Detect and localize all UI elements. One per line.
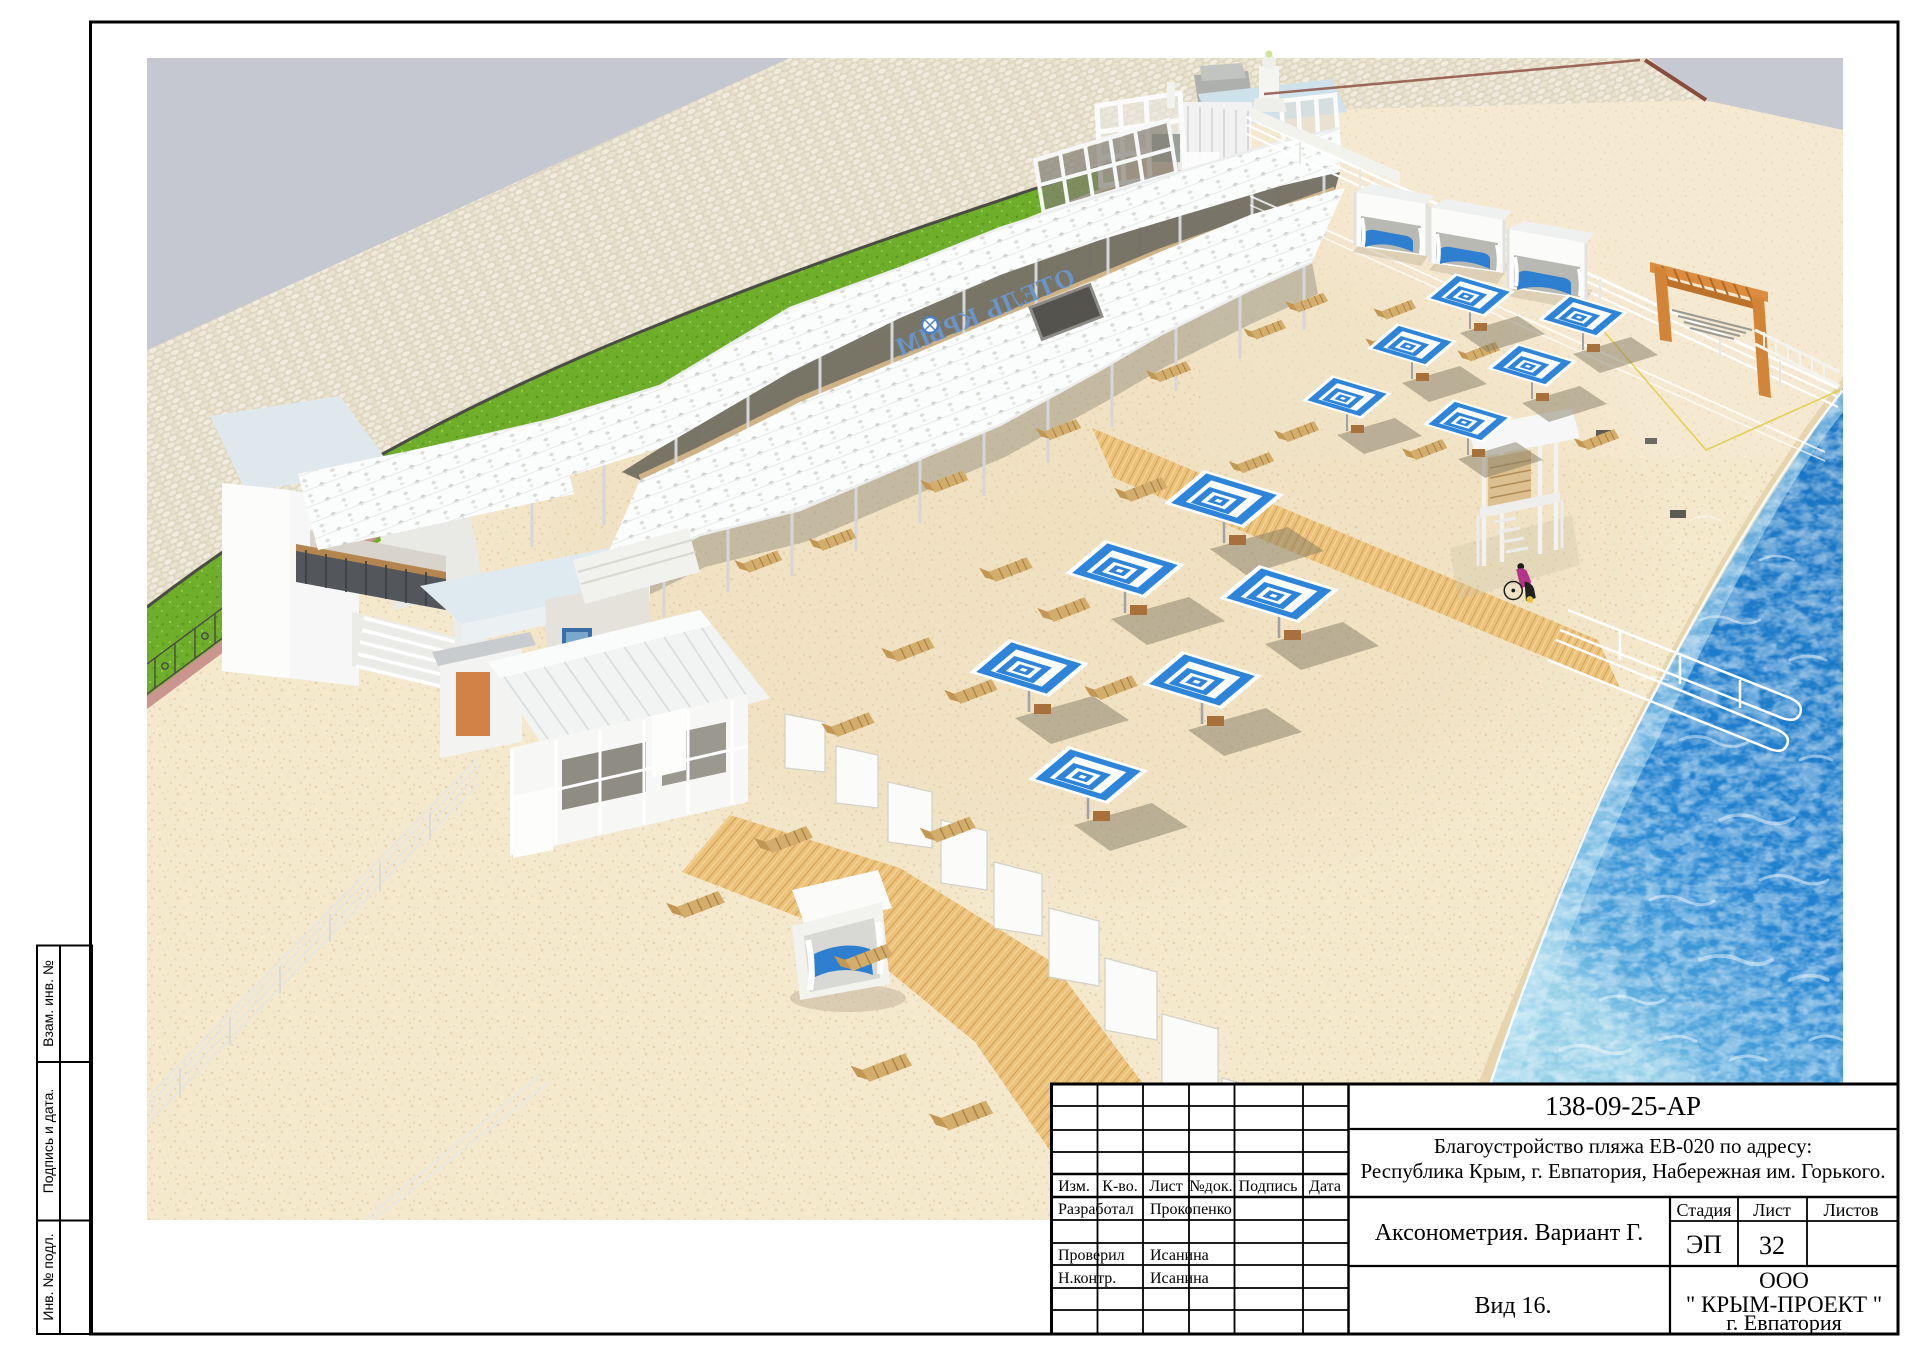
- svg-text:г. Евпатория: г. Евпатория: [1726, 1310, 1842, 1335]
- svg-text:Исанина: Исанина: [1150, 1247, 1209, 1264]
- svg-text:32: 32: [1759, 1231, 1785, 1260]
- svg-text:Инв. № подл.: Инв. № подл.: [40, 1233, 56, 1320]
- svg-text:138-09-25-АР: 138-09-25-АР: [1545, 1091, 1701, 1121]
- svg-text:Исанина: Исанина: [1150, 1270, 1209, 1287]
- svg-text:К-во.: К-во.: [1102, 1178, 1137, 1195]
- svg-text:Взам. инв. №: Взам. инв. №: [40, 960, 56, 1047]
- svg-text:Лист: Лист: [1149, 1178, 1183, 1195]
- svg-text:Прокопенко: Прокопенко: [1150, 1201, 1232, 1218]
- svg-text:Аксонометрия. Вариант Г.: Аксонометрия. Вариант Г.: [1375, 1220, 1644, 1246]
- svg-text:Проверил: Проверил: [1058, 1247, 1125, 1264]
- svg-text:Подпись: Подпись: [1239, 1178, 1298, 1195]
- svg-text:Н.контр.: Н.контр.: [1058, 1270, 1116, 1287]
- svg-text:Республика Крым, г. Евпатори: Республика Крым, г. Евпатория, Набережна…: [1361, 1159, 1886, 1183]
- svg-text:ЭП: ЭП: [1686, 1230, 1722, 1259]
- svg-text:Дата: Дата: [1309, 1178, 1341, 1195]
- svg-text:ООО: ООО: [1759, 1268, 1809, 1293]
- svg-text:Подпись и дата.: Подпись и дата.: [40, 1089, 56, 1194]
- svg-text:Вид 16.: Вид 16.: [1474, 1293, 1551, 1319]
- svg-text:Благоустройство пляжа ЕВ-020 п: Благоустройство пляжа ЕВ-020 по адресу:: [1434, 1134, 1812, 1158]
- svg-text:Лист: Лист: [1753, 1200, 1791, 1220]
- svg-text:Изм.: Изм.: [1058, 1178, 1090, 1195]
- svg-text:Разработал: Разработал: [1058, 1201, 1134, 1218]
- svg-text:Стадия: Стадия: [1677, 1200, 1732, 1220]
- svg-text:Листов: Листов: [1824, 1200, 1879, 1220]
- svg-text:№док.: №док.: [1189, 1178, 1232, 1195]
